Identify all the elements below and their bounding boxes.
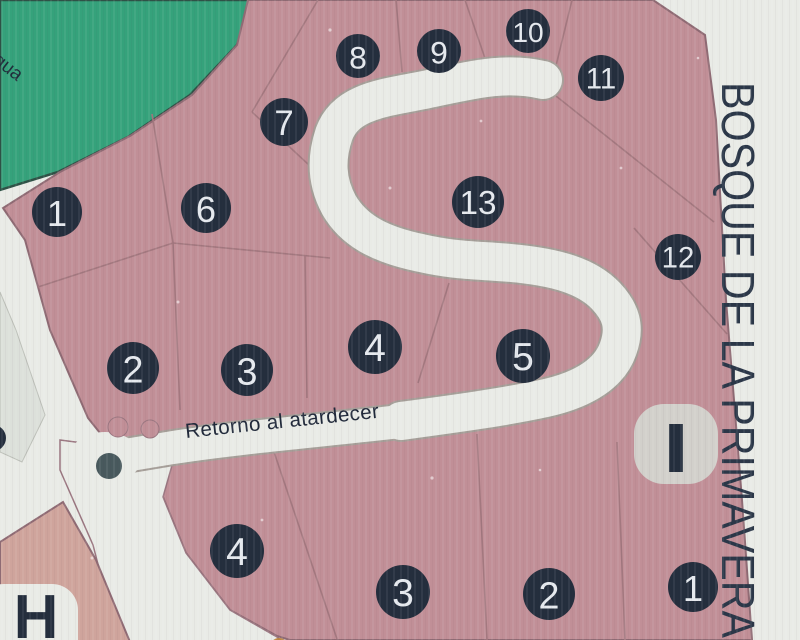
lot-marker-label: 8 xyxy=(349,39,367,75)
map-canvas: 123456789101112134321 I H Retorno al ata… xyxy=(0,0,800,640)
lot-marker-label: 2 xyxy=(539,575,560,617)
lot-marker-label: 2 xyxy=(123,349,144,391)
lot-marker-label: 6 xyxy=(196,189,216,230)
lot-marker-label: 4 xyxy=(226,531,248,574)
lot-marker-label: 4 xyxy=(364,327,386,370)
lot-marker-label: 3 xyxy=(237,351,258,393)
subdivision-map-sign: 123456789101112134321 I H Retorno al ata… xyxy=(0,0,800,640)
lot-marker-label: 12 xyxy=(662,242,695,275)
lot-marker-label: 9 xyxy=(430,34,448,70)
lot-marker-label: 7 xyxy=(274,104,293,143)
lot-marker-label: 1 xyxy=(683,568,703,609)
block-badge-i: I xyxy=(634,404,718,487)
lot-marker-label: 1 xyxy=(47,193,67,234)
badge-h-label: H xyxy=(14,583,59,640)
scallop-bump xyxy=(108,417,128,437)
lot-marker-label: 13 xyxy=(459,185,496,222)
badge-i-label: I xyxy=(663,409,689,487)
lot-marker-label: 3 xyxy=(392,572,414,615)
area-title-vertical: BOSQUE DE LA PRIMAVERA xyxy=(712,82,764,638)
lot-marker-label: 10 xyxy=(512,16,543,48)
lot-marker-label: 11 xyxy=(586,63,617,96)
lot-marker-label: 5 xyxy=(512,336,534,379)
roundabout-dot xyxy=(96,453,122,479)
block-badge-h: H xyxy=(0,583,78,640)
scallop-bump xyxy=(141,420,159,438)
